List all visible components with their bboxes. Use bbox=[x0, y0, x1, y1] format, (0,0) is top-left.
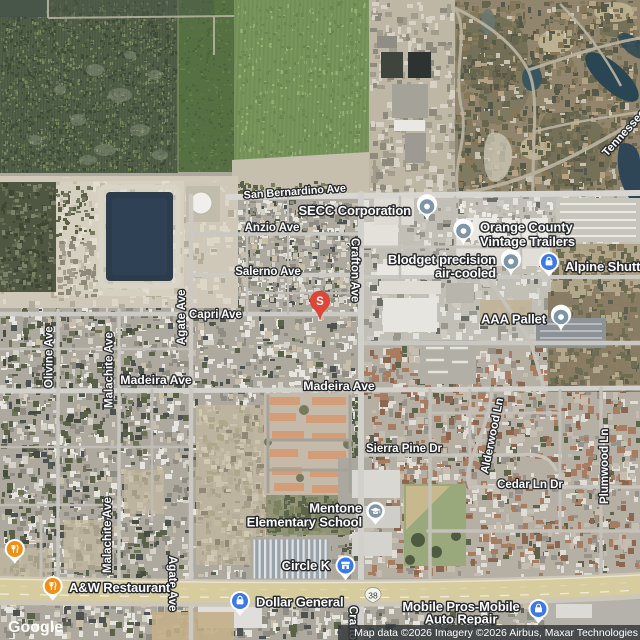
svg-text:Circle K: Circle K bbox=[282, 558, 331, 573]
svg-text:Plumwood Ln: Plumwood Ln bbox=[599, 429, 611, 504]
svg-text:AAA Pallet: AAA Pallet bbox=[481, 312, 547, 327]
svg-text:Auto Repair: Auto Repair bbox=[425, 612, 498, 627]
svg-text:Dollar General: Dollar General bbox=[256, 595, 343, 610]
svg-text:Salerno Ave: Salerno Ave bbox=[235, 266, 301, 278]
svg-text:Alpine Shutters: Alpine Shutters bbox=[565, 259, 640, 274]
svg-text:A&W Restaurant: A&W Restaurant bbox=[69, 580, 171, 595]
svg-text:Orange County: Orange County bbox=[480, 220, 573, 235]
svg-text:Elementary School: Elementary School bbox=[247, 515, 362, 530]
svg-text:Mentone: Mentone bbox=[309, 501, 362, 516]
svg-text:Map data ©2026 Imagery ©2026 A: Map data ©2026 Imagery ©2026 Airbus, Max… bbox=[354, 627, 638, 639]
svg-text:Olivine Ave: Olivine Ave bbox=[44, 326, 56, 388]
svg-text:Agate Ave: Agate Ave bbox=[176, 290, 188, 345]
svg-text:Malachite Ave: Malachite Ave bbox=[102, 497, 114, 573]
svg-text:Vintage Trailers: Vintage Trailers bbox=[480, 234, 575, 249]
svg-text:Madeira Ave: Madeira Ave bbox=[120, 373, 192, 387]
svg-text:SECC Corporation: SECC Corporation bbox=[298, 203, 411, 218]
svg-text:S: S bbox=[316, 296, 324, 308]
svg-text:Sierra Pine Dr: Sierra Pine Dr bbox=[366, 443, 443, 455]
svg-text:Cedar Ln Dr: Cedar Ln Dr bbox=[497, 479, 563, 491]
svg-text:Anzio Ave: Anzio Ave bbox=[245, 222, 300, 234]
svg-text:Capri Ave: Capri Ave bbox=[189, 309, 242, 321]
svg-text:air-cooled: air-cooled bbox=[435, 266, 496, 281]
svg-text:Madeira Ave: Madeira Ave bbox=[303, 379, 375, 393]
svg-text:Crafton Ave: Crafton Ave bbox=[349, 238, 361, 302]
svg-text:Google: Google bbox=[8, 619, 63, 636]
svg-text:38: 38 bbox=[368, 591, 378, 601]
svg-text:Malachite Ave: Malachite Ave bbox=[104, 332, 116, 408]
